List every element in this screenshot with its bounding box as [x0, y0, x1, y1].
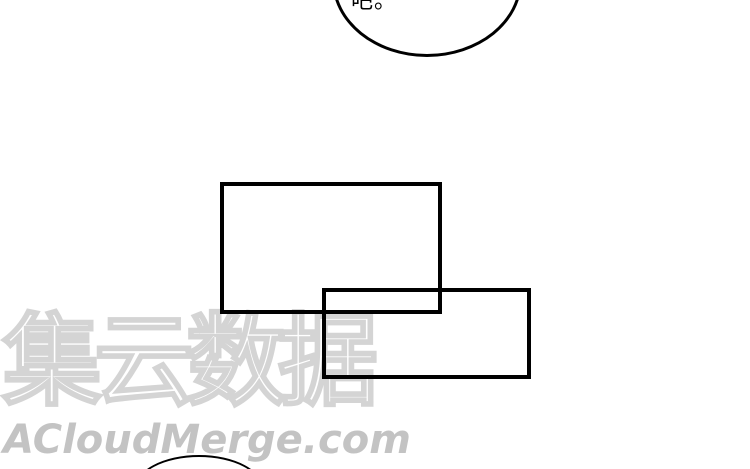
comic-panel-frame-2: [322, 288, 531, 379]
comic-page: 吧。 集云数据 ACloudMerge.com: [0, 0, 750, 469]
speech-bubble-top-text: 吧。: [351, 0, 397, 13]
watermark-title: 集云数据: [2, 308, 370, 416]
